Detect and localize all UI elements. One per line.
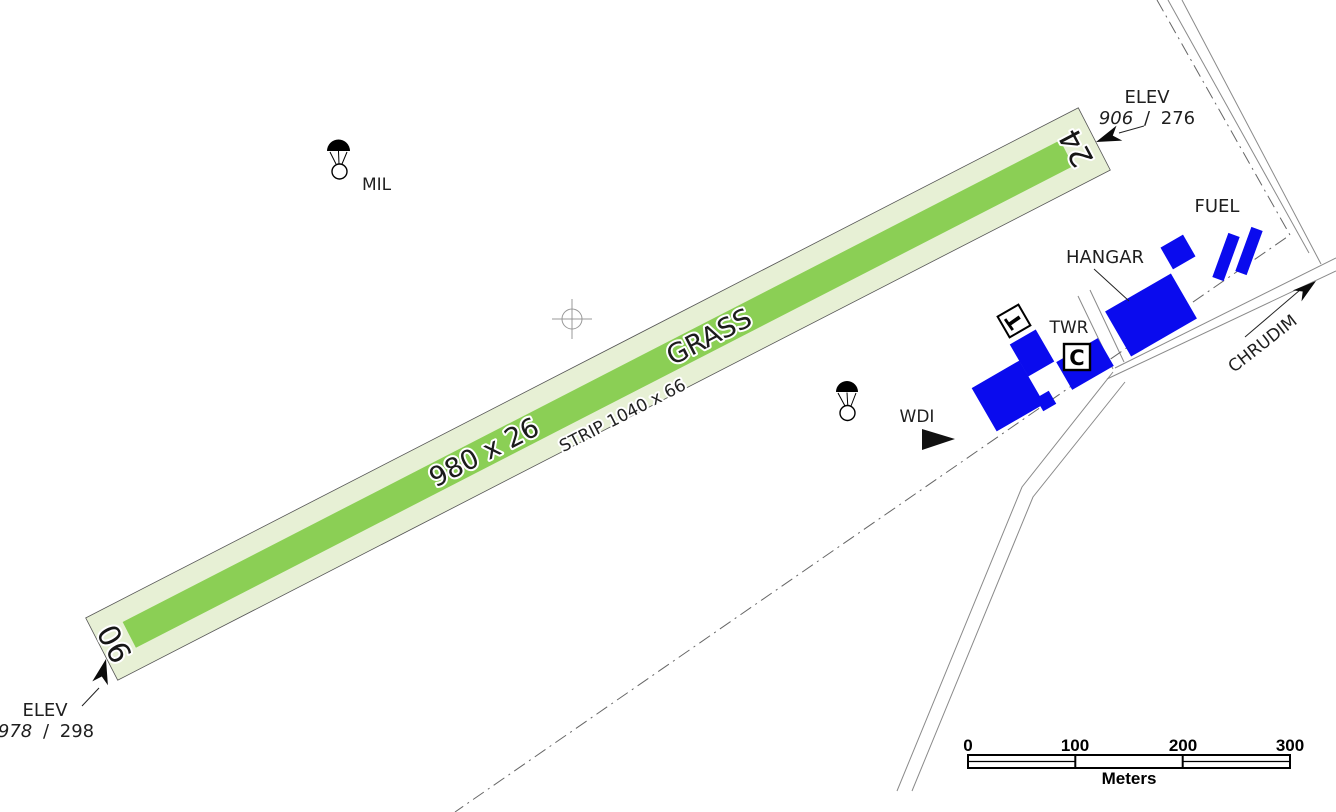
elev-06-values: 978 / 298 bbox=[0, 721, 94, 742]
elev-06-feet: 978 bbox=[0, 721, 32, 742]
chrudim-label: CHRUDIM bbox=[1225, 311, 1302, 377]
elev-06-title: ELEV bbox=[22, 700, 68, 721]
elev-06-leader bbox=[82, 688, 99, 706]
mil-label: MIL bbox=[362, 175, 392, 195]
scale-tick-300: 300 bbox=[1276, 736, 1304, 755]
elev-24-values: 906 / 276 bbox=[1099, 108, 1195, 129]
threshold-arrow-06-icon bbox=[92, 659, 108, 685]
c-box-letter: C bbox=[1069, 346, 1084, 370]
scale-unit-label: Meters bbox=[1102, 769, 1157, 788]
scale-tick-200: 200 bbox=[1169, 736, 1197, 755]
elev-24-title: ELEV bbox=[1124, 87, 1170, 108]
wdi-arrow-icon bbox=[922, 429, 955, 450]
c-box: C bbox=[1064, 344, 1090, 370]
elev-06-meters: 298 bbox=[60, 721, 94, 742]
building bbox=[1160, 235, 1195, 270]
scale-bar: 0 100 200 300 Meters bbox=[963, 736, 1304, 788]
elev-block-06: ELEV 978 / 298 bbox=[0, 659, 108, 742]
scale-tick-0: 0 bbox=[963, 736, 972, 755]
twr-label: TWR bbox=[1048, 318, 1088, 338]
elev-block-24: ELEV 906 / 276 bbox=[1096, 87, 1195, 142]
reference-point-icon bbox=[552, 299, 592, 339]
elev-24-slash: / bbox=[1144, 108, 1151, 129]
hangar-label: HANGAR bbox=[1066, 247, 1144, 268]
elev-06-slash: / bbox=[43, 721, 50, 742]
aerodrome-chart: 980 x 26 GRASS STRIP 1040 x 66 06 24 MIL… bbox=[0, 0, 1336, 812]
hangar-leader-line bbox=[1094, 269, 1129, 301]
wdi-parachute-icon bbox=[836, 381, 858, 421]
runway-surface bbox=[123, 140, 1074, 648]
building-fuel-tank bbox=[1212, 233, 1239, 281]
mil-parachute-icon bbox=[327, 140, 350, 180]
wdi-label: WDI bbox=[900, 407, 935, 427]
elev-24-feet: 906 bbox=[1099, 108, 1133, 129]
chrudim-arrowhead-icon bbox=[1293, 281, 1316, 301]
road-line bbox=[1182, 0, 1321, 264]
fuel-label: FUEL bbox=[1195, 196, 1240, 217]
road-line bbox=[912, 382, 1125, 791]
building-hangar bbox=[1105, 273, 1197, 356]
runway-group: 980 x 26 GRASS STRIP 1040 x 66 bbox=[86, 108, 1113, 686]
elev-24-meters: 276 bbox=[1161, 108, 1195, 129]
t-box: T bbox=[997, 304, 1031, 337]
building-fuel-tank bbox=[1235, 227, 1262, 275]
scale-tick-100: 100 bbox=[1061, 736, 1089, 755]
chart-canvas: 980 x 26 GRASS STRIP 1040 x 66 06 24 MIL… bbox=[0, 0, 1336, 812]
